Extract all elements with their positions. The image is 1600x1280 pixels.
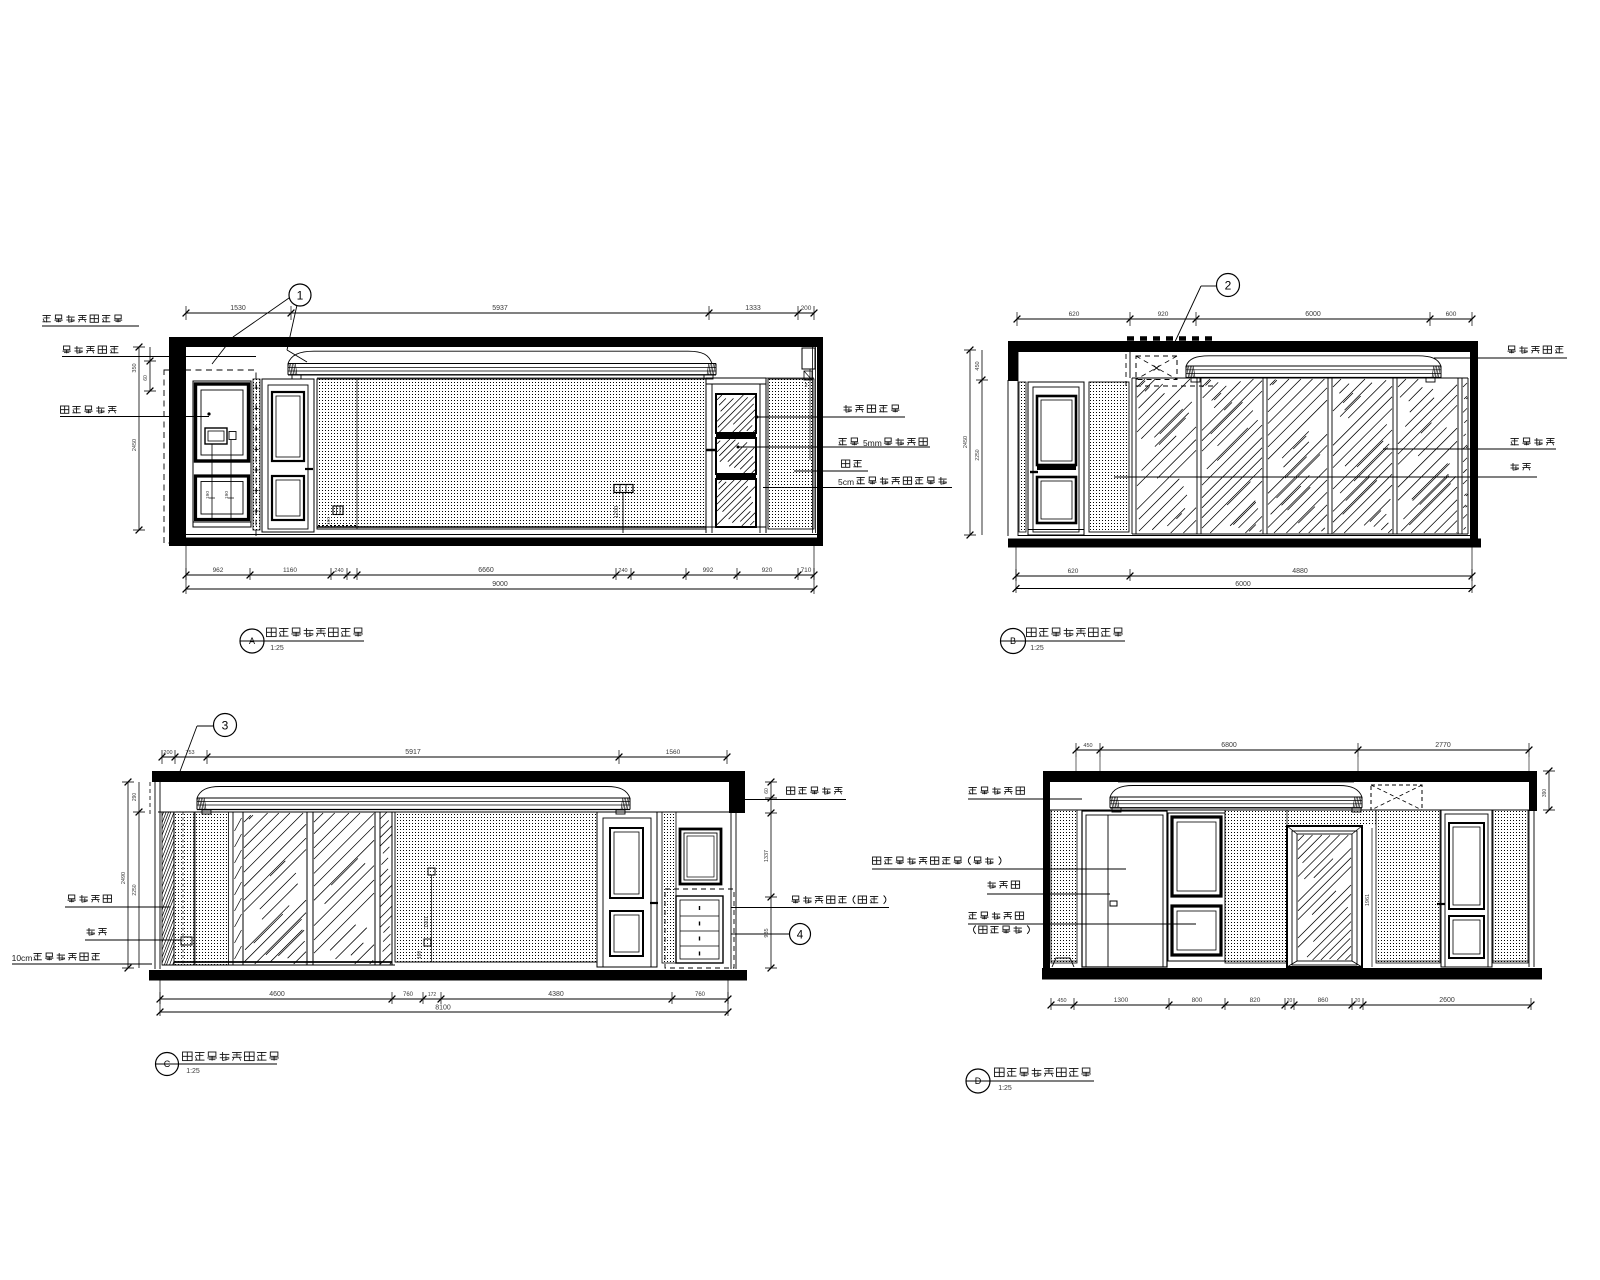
svg-text:2770: 2770: [1435, 742, 1451, 749]
svg-text:450: 450: [1083, 743, 1092, 749]
svg-text:1: 1: [297, 289, 304, 303]
svg-text:9000: 9000: [492, 581, 508, 588]
svg-text:10cm: 10cm: [12, 953, 33, 963]
svg-text:800: 800: [1192, 997, 1203, 1004]
svg-text:5937: 5937: [492, 305, 508, 312]
svg-text:820: 820: [1250, 997, 1261, 1004]
svg-text:190: 190: [326, 517, 332, 525]
svg-text:1:25: 1:25: [270, 645, 284, 652]
svg-text:C: C: [164, 1059, 171, 1069]
svg-text:4380: 4380: [548, 991, 564, 998]
svg-text:760: 760: [695, 992, 706, 998]
svg-text:4: 4: [797, 930, 804, 942]
svg-text:200: 200: [163, 750, 172, 756]
svg-text:2: 2: [804, 383, 807, 389]
svg-text:710: 710: [801, 567, 812, 574]
svg-text:2: 2: [1225, 279, 1232, 293]
svg-text:2600: 2600: [1439, 997, 1455, 1004]
svg-text:600: 600: [1446, 311, 1457, 318]
svg-text:620: 620: [1068, 568, 1079, 575]
svg-text:6000: 6000: [1305, 311, 1321, 318]
svg-text:860: 860: [1318, 997, 1329, 1004]
svg-text:4880: 4880: [1292, 568, 1308, 575]
svg-text:240: 240: [618, 568, 627, 574]
svg-text:172: 172: [428, 992, 437, 998]
svg-text:2450: 2450: [132, 439, 138, 451]
svg-text:4600: 4600: [269, 991, 285, 998]
svg-text:760: 760: [403, 992, 414, 998]
svg-text:5917: 5917: [405, 749, 421, 756]
svg-text:5cm: 5cm: [838, 477, 854, 487]
svg-text:2490: 2490: [121, 872, 127, 884]
svg-text:8100: 8100: [435, 1005, 451, 1012]
svg-text:20: 20: [1355, 998, 1361, 1004]
svg-text:390: 390: [1542, 789, 1548, 798]
svg-text:240: 240: [334, 568, 343, 574]
svg-text:2450: 2450: [963, 436, 969, 448]
svg-text:20: 20: [1287, 998, 1293, 1004]
svg-text:1160: 1160: [283, 567, 297, 574]
svg-text:920: 920: [762, 567, 773, 574]
svg-text:1961: 1961: [1365, 894, 1371, 906]
svg-text:D: D: [975, 1076, 982, 1086]
svg-text:1560: 1560: [666, 749, 681, 756]
svg-text:1:25: 1:25: [998, 1085, 1012, 1092]
svg-text:A: A: [249, 636, 255, 646]
svg-text:60: 60: [143, 375, 149, 381]
svg-text:1901: 1901: [424, 916, 430, 928]
svg-text:5mm: 5mm: [863, 438, 882, 448]
svg-text:620: 620: [1069, 311, 1080, 318]
svg-text:450: 450: [975, 361, 981, 370]
svg-text:6000: 6000: [1235, 581, 1251, 588]
svg-text:6660: 6660: [478, 567, 494, 574]
svg-text:1:25: 1:25: [1030, 645, 1044, 652]
svg-text:1200: 1200: [614, 506, 620, 518]
svg-text:962: 962: [213, 567, 224, 574]
svg-text:935: 935: [764, 928, 770, 937]
svg-text:290: 290: [132, 793, 138, 802]
svg-text:920: 920: [1158, 311, 1169, 318]
svg-text:2250: 2250: [975, 449, 981, 460]
svg-text:6800: 6800: [1221, 742, 1237, 749]
svg-text:200: 200: [801, 305, 812, 312]
svg-text:B: B: [1010, 636, 1016, 646]
svg-text:450: 450: [1057, 998, 1066, 1004]
svg-text:60: 60: [764, 788, 770, 794]
svg-text:1333: 1333: [745, 305, 761, 312]
svg-text:1300: 1300: [1114, 997, 1129, 1004]
svg-text:3: 3: [222, 719, 229, 733]
svg-text:992: 992: [703, 567, 714, 574]
svg-text:160: 160: [417, 951, 423, 960]
svg-text:1:25: 1:25: [186, 1068, 200, 1075]
svg-text:1337: 1337: [764, 850, 770, 862]
svg-text:1530: 1530: [230, 305, 246, 312]
svg-text:2250: 2250: [132, 884, 138, 895]
svg-text:350: 350: [132, 363, 138, 372]
